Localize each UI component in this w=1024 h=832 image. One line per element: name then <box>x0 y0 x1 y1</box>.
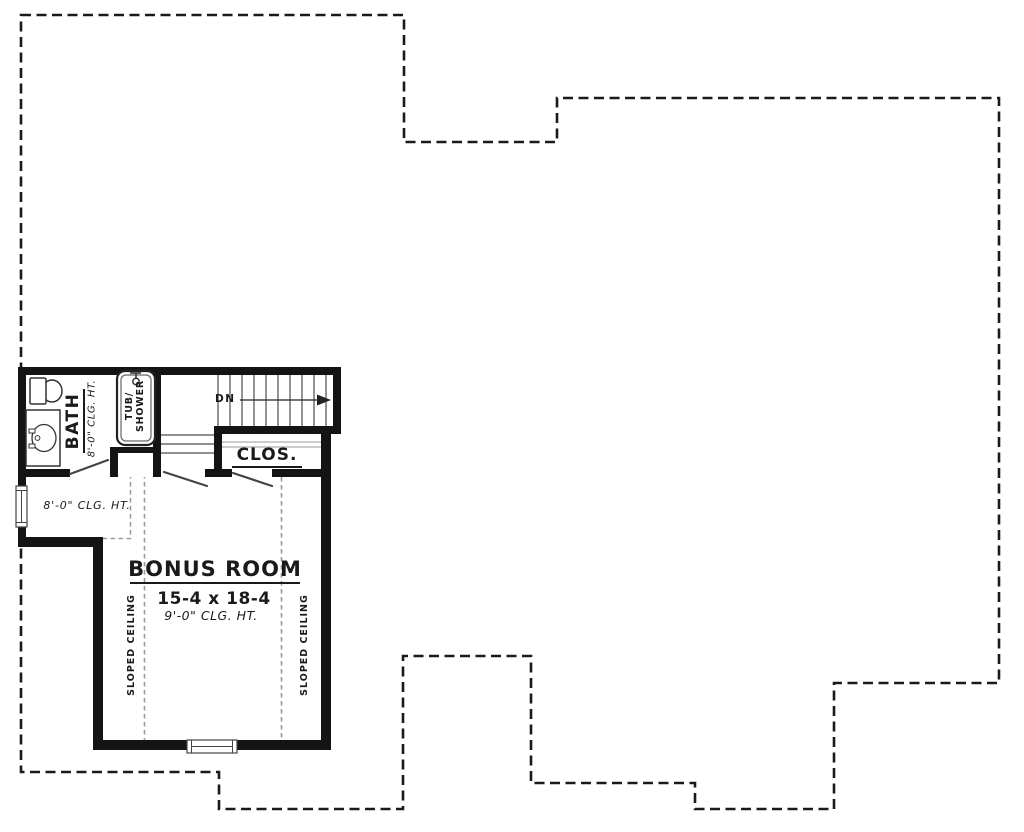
closet-door-leaf-right <box>233 473 272 486</box>
wall-top <box>18 367 341 375</box>
bath-ceiling-height-label: 8'-0" CLG. HT. <box>86 376 99 462</box>
wall-step <box>18 537 103 547</box>
hall-ceiling-height-label: 8'-0" CLG. HT. <box>27 498 147 512</box>
wall-bonus-left <box>93 537 103 750</box>
toilet-icon <box>30 378 62 404</box>
bath-door-leaf <box>70 460 108 474</box>
tub-label-line2: SHOWER <box>135 380 146 432</box>
wall-stair-right <box>333 367 341 434</box>
bonus-room-label: BONUS ROOM <box>130 556 300 584</box>
linen-closet-interior <box>118 453 153 477</box>
sink-vanity-icon <box>26 410 60 466</box>
bath-room-label: BATH <box>63 389 85 453</box>
floor-plan-drawing <box>0 0 1024 832</box>
tub-label-line1: TUB/ <box>124 380 135 432</box>
wall-stair-bottom <box>214 426 341 434</box>
wall-bath-bottom-right <box>272 469 331 477</box>
window-left-icon <box>16 486 27 527</box>
bonus-room-ceiling-height: 9'-0" CLG. HT. <box>141 608 281 623</box>
wall-bath-bottom-mid <box>205 469 232 477</box>
window-bottom-icon <box>187 740 237 753</box>
tub-shower-label: TUB/ SHOWER <box>123 374 147 438</box>
closet-label: CLOS. <box>232 444 302 468</box>
stair-lower-treads <box>161 435 214 453</box>
bonus-room-dimensions: 15-4 x 18-4 <box>144 589 284 608</box>
wall-bath-bottom-left <box>18 469 70 477</box>
sloped-ceiling-label-right: SLOPED CEILING <box>298 599 310 691</box>
closet-door-leaf-left <box>164 472 207 486</box>
roof-outline <box>21 15 999 809</box>
stairs-dn-label: DN <box>215 393 236 405</box>
sloped-ceiling-label-left: SLOPED CEILING <box>125 599 137 691</box>
floor-plan-canvas: BATH 8'-0" CLG. HT. TUB/ SHOWER DN CLOS.… <box>0 0 1024 832</box>
